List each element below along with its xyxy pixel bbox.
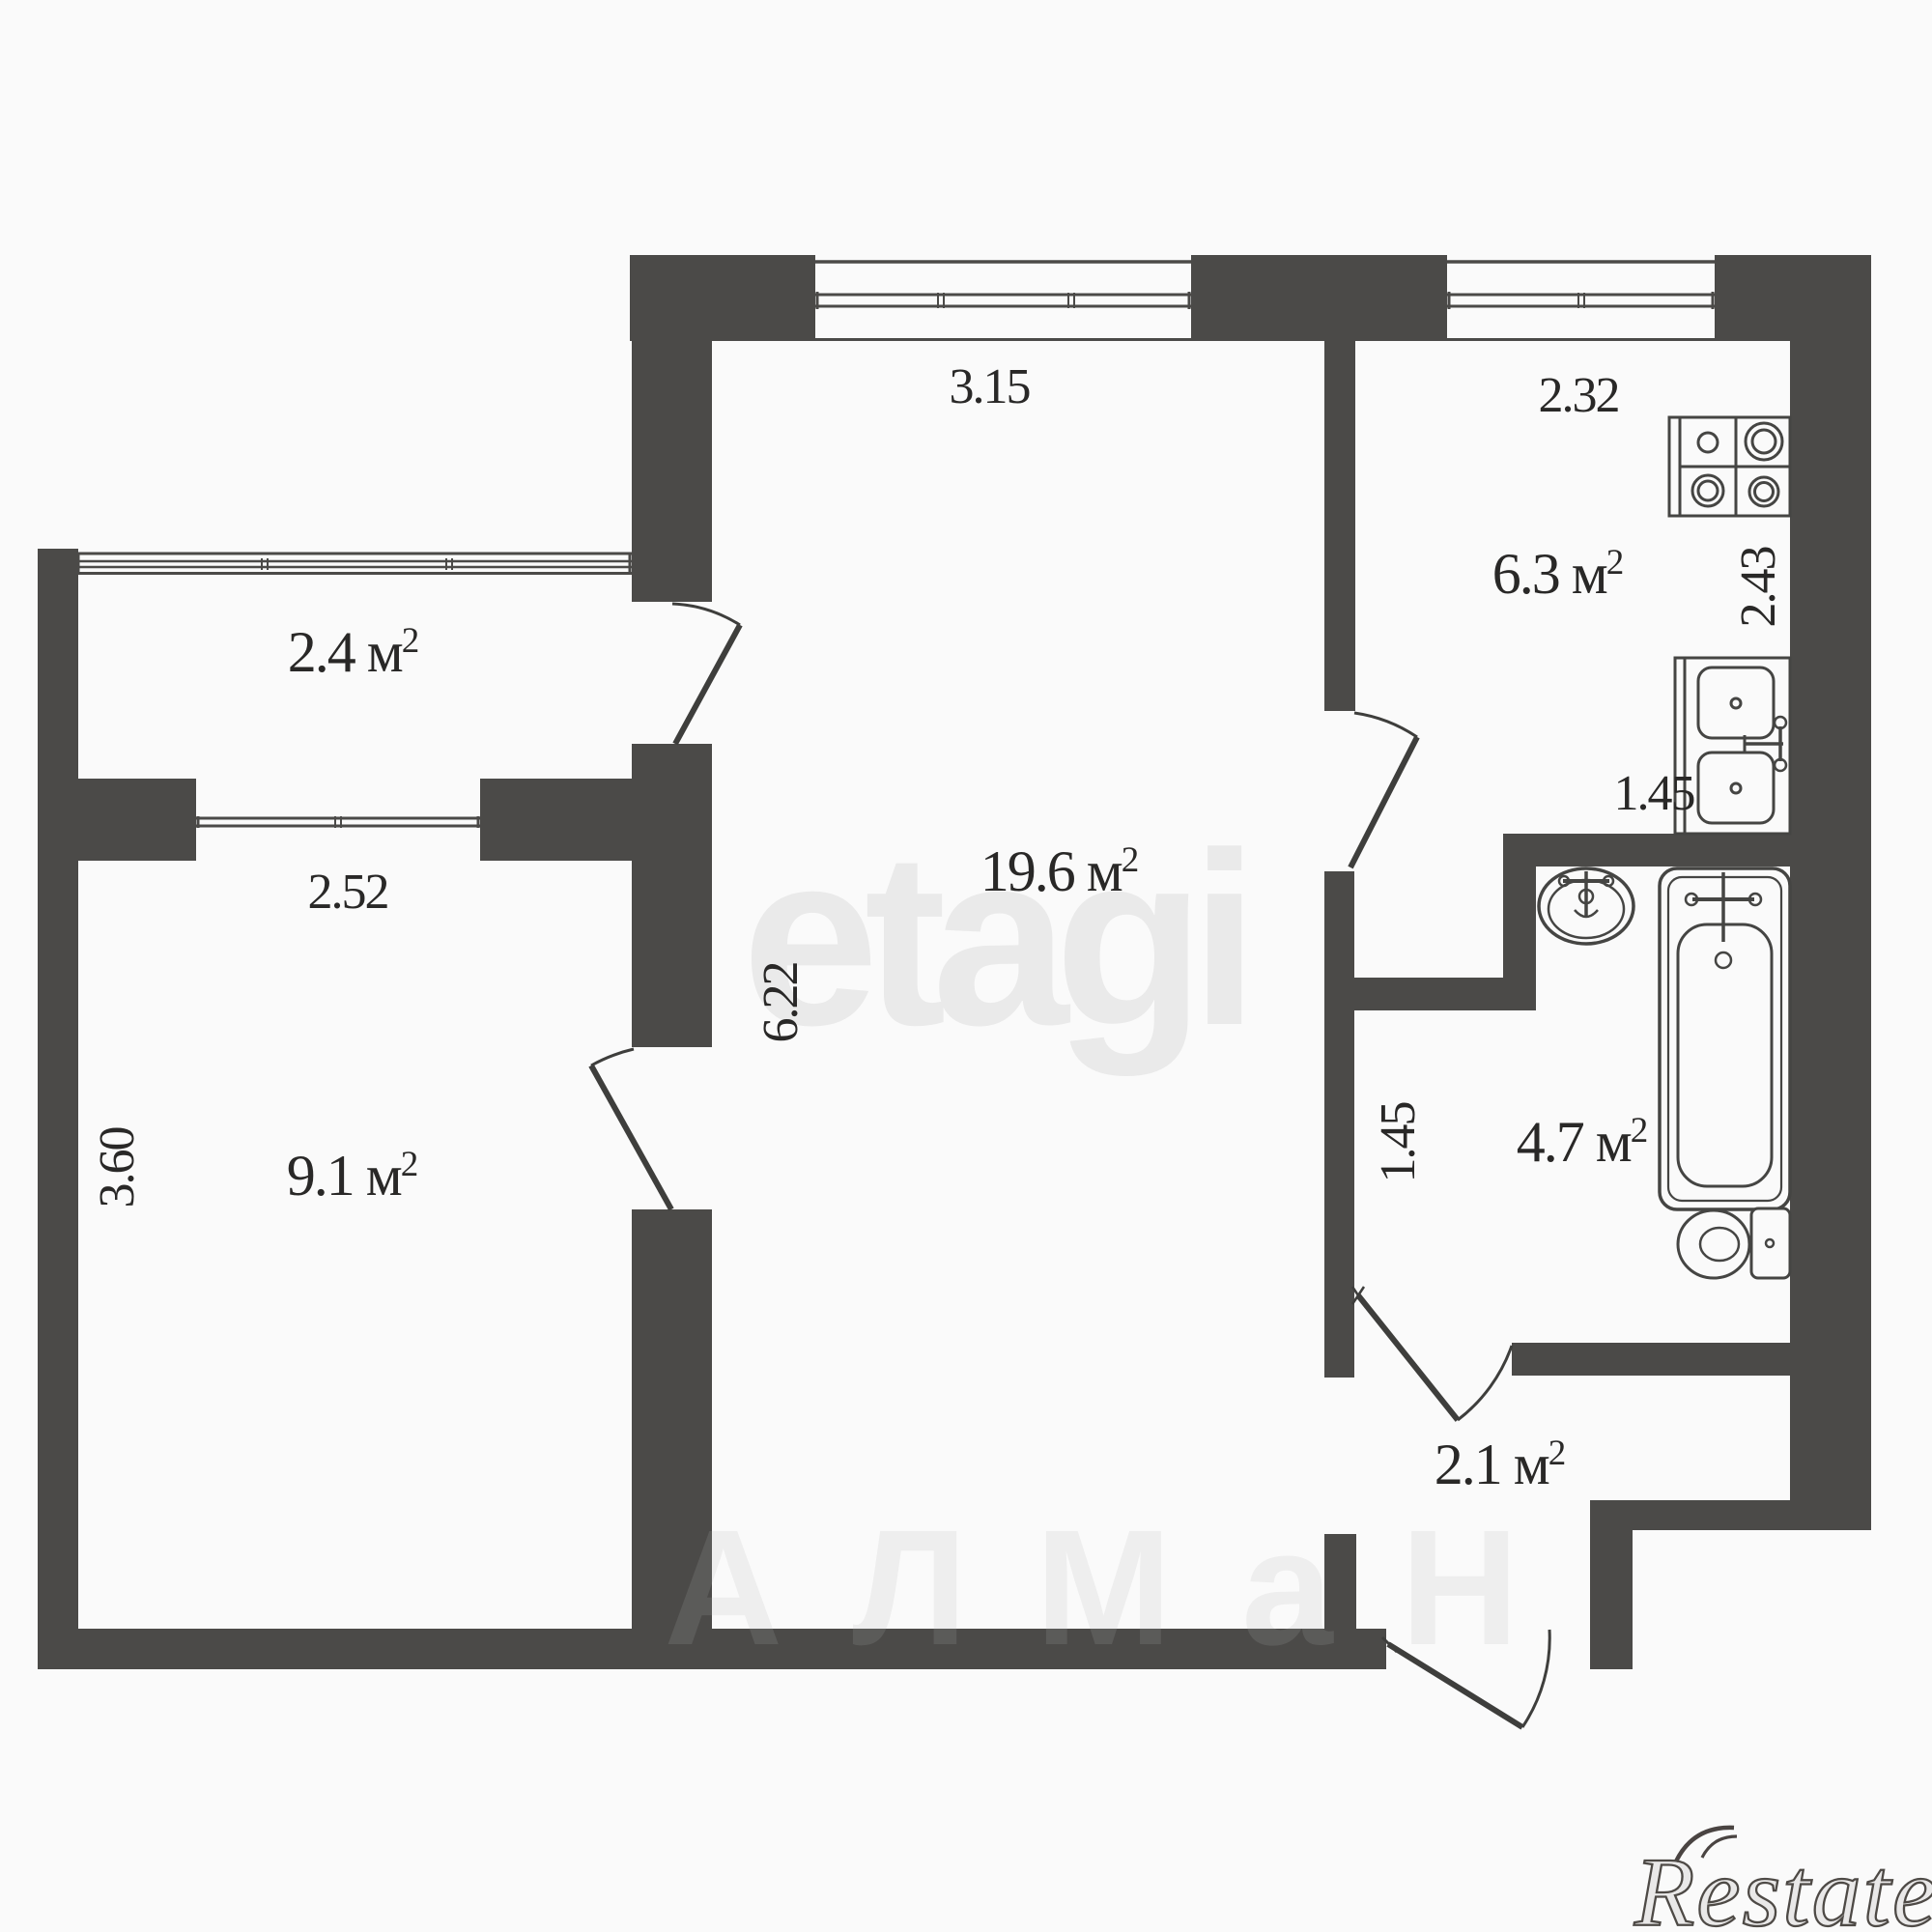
svg-text:Restate: Restate xyxy=(1634,1838,1932,1932)
svg-text:3.15: 3.15 xyxy=(950,359,1030,414)
svg-text:АЛМаН: АЛМаН xyxy=(664,1496,1586,1680)
svg-text:1.45: 1.45 xyxy=(1614,766,1694,821)
svg-text:2.32: 2.32 xyxy=(1539,368,1619,423)
svg-text:19.6 м2: 19.6 м2 xyxy=(980,839,1138,903)
svg-text:3.60: 3.60 xyxy=(90,1127,145,1208)
svg-text:2.1 м2: 2.1 м2 xyxy=(1435,1433,1565,1496)
svg-text:6.22: 6.22 xyxy=(753,963,809,1043)
svg-text:2.52: 2.52 xyxy=(308,865,388,920)
svg-text:6.3 м2: 6.3 м2 xyxy=(1492,542,1623,606)
svg-text:1.45: 1.45 xyxy=(1371,1103,1426,1183)
svg-text:4.7 м2: 4.7 м2 xyxy=(1517,1110,1647,1174)
svg-text:2.4 м2: 2.4 м2 xyxy=(288,620,418,684)
svg-text:2.43: 2.43 xyxy=(1731,548,1786,628)
svg-text:9.1 м2: 9.1 м2 xyxy=(287,1144,417,1207)
